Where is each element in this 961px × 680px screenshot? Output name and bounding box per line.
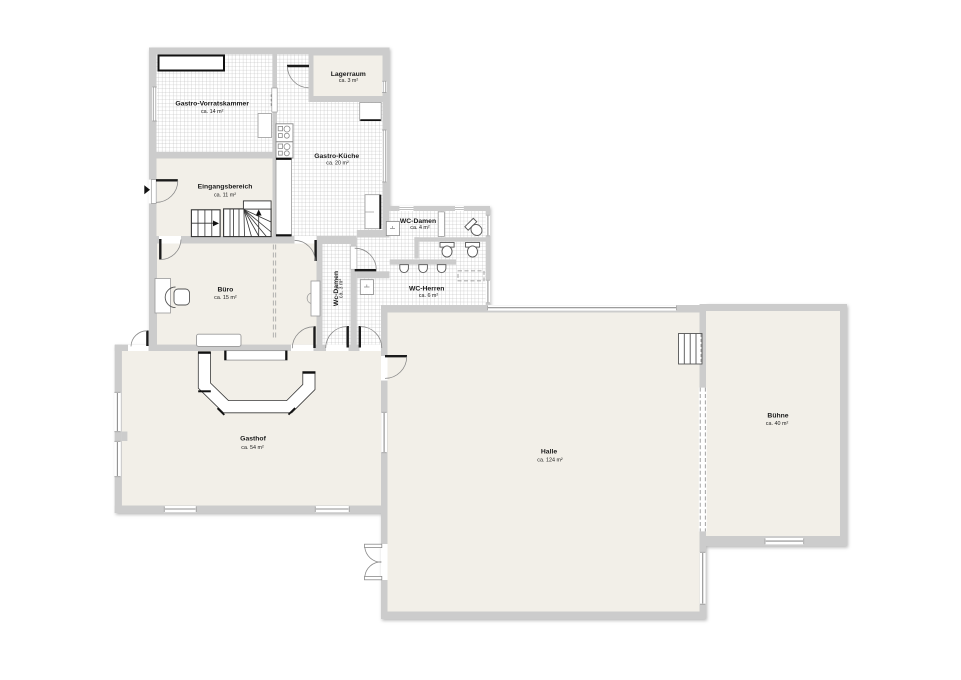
svg-text:ca. 6 m²: ca. 6 m²: [419, 293, 439, 299]
svg-text:Gastro-Vorratskammer: Gastro-Vorratskammer: [175, 100, 249, 107]
svg-text:ca. 11 m²: ca. 11 m²: [214, 192, 236, 198]
svg-text:Halle: Halle: [541, 448, 557, 455]
svg-text:Bühne: Bühne: [767, 412, 788, 419]
svg-text:ca. 14 m²: ca. 14 m²: [201, 109, 224, 115]
svg-text:WC-Herren: WC-Herren: [409, 286, 445, 293]
svg-text:ca. 4 m²: ca. 4 m²: [410, 225, 430, 231]
svg-text:Gastro-Küche: Gastro-Küche: [314, 153, 359, 160]
svg-text:ca. 40 m²: ca. 40 m²: [766, 421, 789, 427]
svg-text:ca. 20 m²: ca. 20 m²: [326, 160, 349, 166]
svg-text:ca. 3 m²: ca. 3 m²: [339, 78, 359, 84]
svg-text:ca. 15 m²: ca. 15 m²: [214, 295, 237, 301]
svg-text:Büro: Büro: [217, 287, 233, 294]
svg-text:WC-Damen: WC-Damen: [400, 218, 436, 225]
svg-text:Eingangsbereich: Eingangsbereich: [198, 183, 253, 190]
svg-text:ca. 3 m²: ca. 3 m²: [339, 279, 345, 299]
svg-text:ca. 124 m²: ca. 124 m²: [537, 457, 563, 463]
svg-text:ca. 54 m²: ca. 54 m²: [241, 445, 264, 451]
svg-text:Gasthof: Gasthof: [240, 436, 266, 443]
